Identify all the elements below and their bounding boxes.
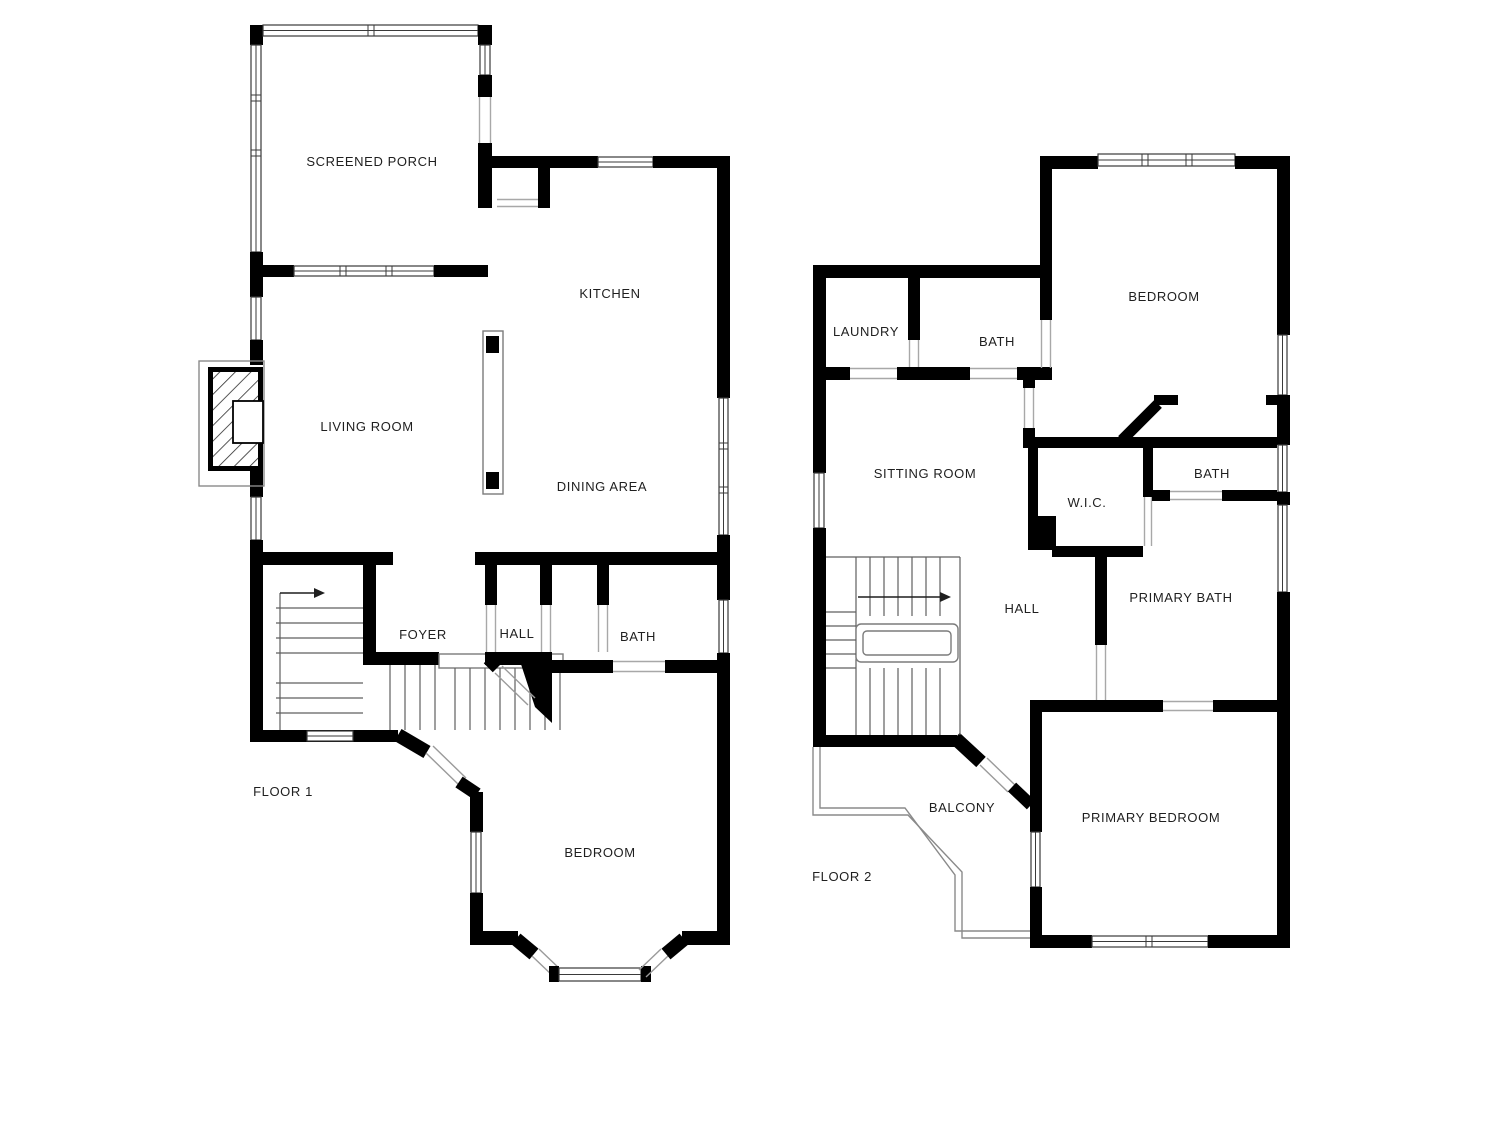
room-label-screened-porch: SCREENED PORCH: [306, 154, 437, 169]
room-label-primary-bath: PRIMARY BATH: [1129, 590, 1232, 605]
room-label-hall-f2: HALL: [1005, 601, 1040, 616]
half-wall-island: [483, 331, 503, 494]
room-label-bedroom-f1: BEDROOM: [564, 845, 635, 860]
room-label-living-room: LIVING ROOM: [320, 419, 413, 434]
room-label-dining-area: DINING AREA: [557, 479, 647, 494]
room-label-balcony: BALCONY: [929, 800, 995, 815]
fireplace: [199, 361, 264, 486]
room-label-foyer: FOYER: [399, 627, 447, 642]
floor-plan-page: SCREENED PORCH KITCHEN LIVING ROOM DININ…: [0, 0, 1500, 1125]
screened-porch-walls: [250, 25, 492, 277]
room-label-laundry: LAUNDRY: [833, 324, 899, 339]
room-label-sitting-room: SITTING ROOM: [874, 466, 977, 481]
floor1-main-wall: [250, 552, 730, 565]
floor-1-plan: SCREENED PORCH KITCHEN LIVING ROOM DININ…: [199, 25, 730, 982]
floor1-title: FLOOR 1: [253, 784, 313, 799]
room-label-bath-upper: BATH: [979, 334, 1015, 349]
floor2-primary-bedroom-walls: [1030, 712, 1290, 948]
floor2-stairs: [813, 557, 1031, 805]
floor1-bedroom-walls: [470, 792, 730, 982]
floor2-hall-walls: [1030, 557, 1290, 712]
room-label-kitchen: KITCHEN: [579, 286, 640, 301]
room-label-hall-f1: HALL: [500, 626, 535, 641]
kitchen-walls: [492, 156, 730, 208]
floor2-title: FLOOR 2: [812, 869, 872, 884]
room-label-bedroom-f2: BEDROOM: [1128, 289, 1199, 304]
floor1-right-wall: [717, 156, 730, 945]
floor-2-plan: LAUNDRY BATH BEDROOM SITTING ROOM W.I.C.…: [812, 154, 1290, 948]
room-label-primary-bedroom: PRIMARY BEDROOM: [1082, 810, 1221, 825]
floor1-hall-bath-walls: [485, 565, 730, 723]
floor1-labels: SCREENED PORCH KITCHEN LIVING ROOM DININ…: [253, 154, 656, 860]
room-label-bath-f1: BATH: [620, 629, 656, 644]
balcony-outline: [813, 747, 1030, 938]
floor-plan-drawing: SCREENED PORCH KITCHEN LIVING ROOM DININ…: [0, 0, 1500, 1125]
room-label-wic: W.I.C.: [1068, 495, 1107, 510]
room-label-bath-right: BATH: [1194, 466, 1230, 481]
